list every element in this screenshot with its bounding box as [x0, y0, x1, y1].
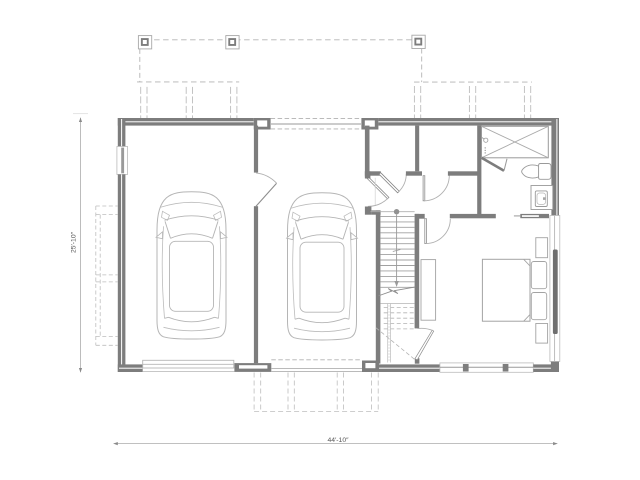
svg-text:25′-10″: 25′-10″ — [71, 231, 78, 253]
svg-text:44′-10″: 44′-10″ — [327, 437, 349, 444]
